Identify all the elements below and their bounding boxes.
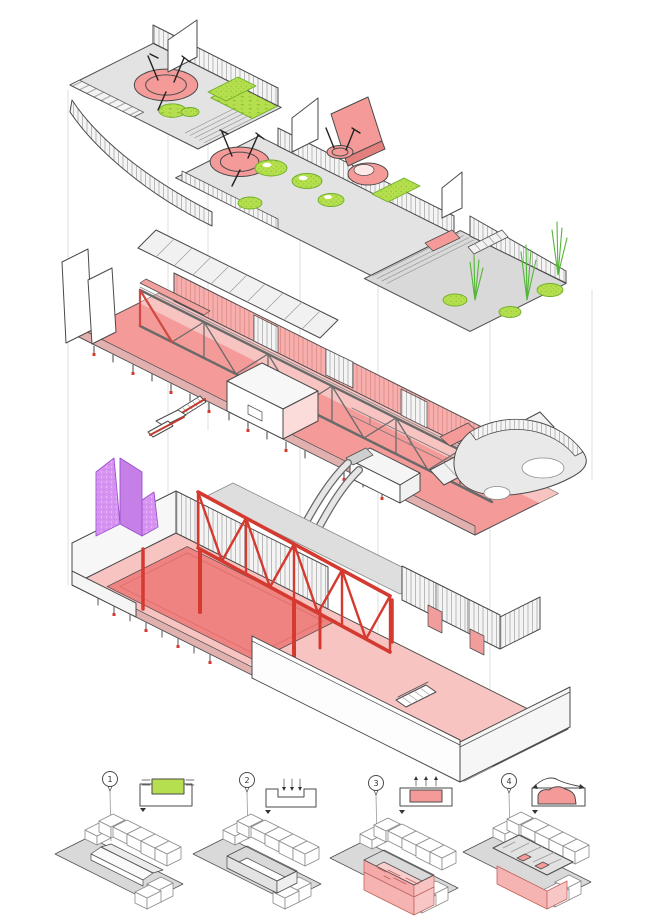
architectural-diagram: 1 2 — [0, 0, 670, 916]
section-icon-roofscape-flow — [532, 778, 585, 814]
section-icon-green-insert — [140, 779, 194, 812]
balloon-3: 3 — [369, 776, 384, 796]
section-icon-excavation — [265, 779, 316, 814]
section-icon-program-infill — [399, 776, 452, 814]
balloon-number-3: 3 — [373, 779, 378, 788]
concept-diagram-2: 2 — [193, 773, 321, 910]
balloon-number-4: 4 — [506, 777, 511, 786]
balloon-4: 4 — [502, 774, 517, 794]
floating-red-stair — [148, 396, 206, 437]
middle-left-walls — [62, 249, 116, 344]
balloon-2: 2 — [240, 773, 255, 793]
concept-diagram-1: 1 — [55, 772, 194, 910]
lower-rooms — [402, 566, 540, 655]
balloon-number-1: 1 — [107, 775, 112, 784]
balloon-number-2: 2 — [244, 776, 249, 785]
concept-diagram-3: 3 — [330, 776, 458, 916]
concept-legend: 1 2 — [55, 772, 591, 916]
wedge-wall — [292, 98, 318, 152]
balloon-1: 1 — [103, 772, 118, 792]
concept-diagram-4: 4 — [463, 774, 591, 910]
play-circle — [327, 146, 353, 159]
exploded-axon-scene: 1 2 — [0, 0, 670, 916]
wedge-wall — [442, 172, 462, 218]
middle-landform — [454, 419, 586, 499]
